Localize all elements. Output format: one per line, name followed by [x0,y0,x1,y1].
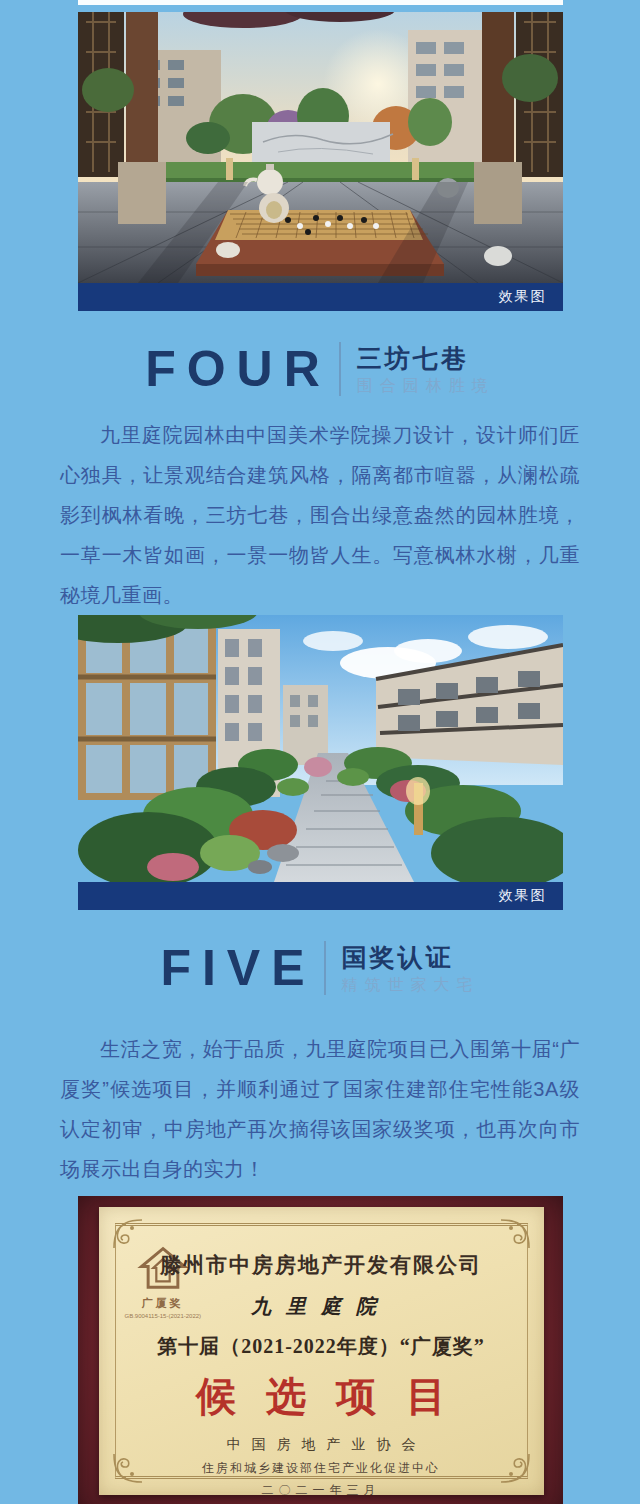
heading-divider [324,941,326,995]
rendering-photo-garden-path: 效果图 [78,615,563,910]
certificate-plaque: 广厦奖 GB.9004115-15-(2021-2022) 滕州市中房房地产开发… [99,1207,544,1495]
certificate-award-title: 候选项目 [99,1369,544,1424]
top-divider [78,0,563,5]
rendering-photo-courtyard: 效果图 [78,12,563,311]
section-heading-four: FOUR 三坊七巷 围合园林胜境 [0,338,640,400]
photo-caption-bar: 效果图 [78,882,563,910]
section-title-five: 国奖认证 [342,943,480,972]
heading-divider [339,342,341,396]
certificate-award-edition: 第十届（2021-2022年度）“广厦奖” [99,1333,544,1360]
courtyard-go-board-illustration [78,12,563,283]
section-title-four: 三坊七巷 [357,344,495,373]
section-number-five: FIVE [160,943,315,993]
section-four-paragraph: 九里庭院园林由中国美术学院操刀设计，设计师们匠心独具，让景观结合建筑风格，隔离都… [60,415,580,615]
section-heading-five: FIVE 国奖认证 精筑世家大宅 [0,937,640,999]
article-page: 效果图 FOUR 三坊七巷 围合园林胜境 九里庭院园林由中国美术学院操刀设计，设… [0,0,640,1504]
certificate-issuer-association: 中国房地产业协会 [99,1436,544,1454]
certificate-date: 二〇二一年三月 [99,1482,544,1499]
section-subtitle-five: 精筑世家大宅 [342,977,480,993]
section-number-four: FOUR [145,344,331,394]
section-subtitle-four: 围合园林胜境 [357,378,495,394]
garden-path-illustration [78,615,563,882]
section-five-paragraph: 生活之宽，始于品质，九里庭院项目已入围第十届“广厦奖”候选项目，并顺利通过了国家… [60,1029,580,1189]
certificate-company-name: 滕州市中房房地产开发有限公司 [99,1251,544,1279]
photo-caption-label: 效果图 [499,887,547,905]
award-certificate-photo: 广厦奖 GB.9004115-15-(2021-2022) 滕州市中房房地产开发… [78,1196,563,1504]
certificate-project-name: 九里庭院 [99,1293,544,1320]
certificate-text: 滕州市中房房地产开发有限公司 九里庭院 第十届（2021-2022年度）“广厦奖… [99,1207,544,1495]
photo-caption-label: 效果图 [499,288,547,306]
certificate-issuer-center: 住房和城乡建设部住宅产业化促进中心 [99,1460,544,1477]
photo-caption-bar: 效果图 [78,283,563,311]
certificate-wooden-frame: 广厦奖 GB.9004115-15-(2021-2022) 滕州市中房房地产开发… [78,1196,563,1504]
